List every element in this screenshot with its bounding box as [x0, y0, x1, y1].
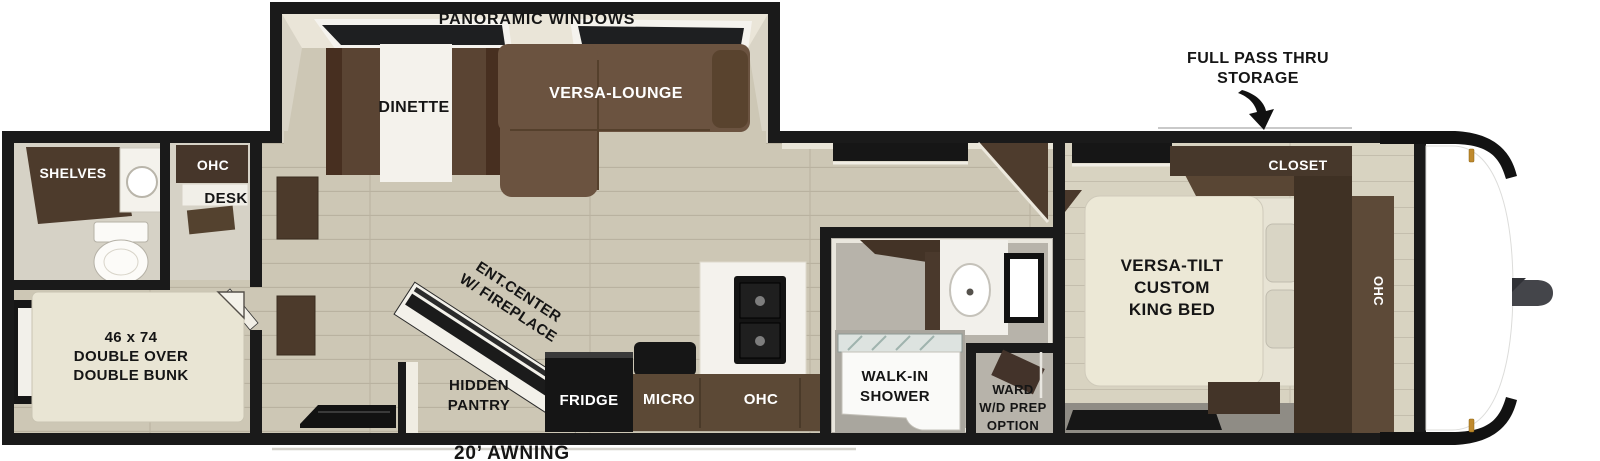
ward-label-line: WARD: [992, 382, 1033, 397]
bedroom-divider-wall: [1053, 143, 1065, 433]
marker-light: [1469, 419, 1474, 432]
bunk-label-line: 46 x 74: [105, 329, 158, 346]
bunk-window-glass: [18, 308, 32, 396]
pass-thru-label-line: FULL PASS THRU: [1187, 50, 1329, 67]
bathroom-top-wall: [820, 227, 1065, 238]
shower-label-line: WALK-IN: [862, 368, 929, 385]
desk-label: DESK: [204, 190, 247, 207]
microwave: [634, 342, 696, 376]
king-bed-label-line: CUSTOM: [1134, 278, 1210, 297]
shower-glass: [838, 334, 962, 352]
lounge-arm: [712, 50, 748, 128]
ward-room: WARD W/D PREP OPTION: [966, 343, 1065, 443]
bath-bunk-wall: [2, 280, 170, 290]
panoramic-windows-label: PANORAMIC WINDOWS: [439, 11, 635, 28]
corridor-window: [833, 143, 968, 161]
tv-panel-lower: [277, 296, 315, 355]
hidden-pantry-label-line: PANTRY: [448, 397, 510, 414]
fridge-top: [545, 352, 633, 358]
pillow: [1266, 224, 1298, 282]
shower-label-line: SHOWER: [860, 388, 930, 405]
pass-thru-arrow-icon: [1238, 90, 1274, 130]
dinette-label: DINETTE: [378, 99, 449, 116]
dinette-booth: DINETTE: [326, 44, 502, 182]
bedroom-ohc-label-group: OHC: [1371, 276, 1386, 306]
bunk-room: 46 x 74 DOUBLE OVER DOUBLE BUNK: [14, 292, 244, 422]
bedroom: VERSA-TILT CUSTOM KING BED CLOSET OHC: [1065, 143, 1414, 433]
bunk-label-line: DOUBLE OVER: [74, 348, 188, 365]
bath-desk-wall: [160, 143, 170, 283]
kitchen-ohc-label: OHC: [744, 391, 779, 408]
pass-thru-label-line: STORAGE: [1217, 70, 1299, 87]
ohc-desk-label: OHC: [197, 157, 229, 173]
versa-lounge-label: VERSA-LOUNGE: [549, 85, 683, 102]
rear-divider-wall-lower: [250, 330, 262, 433]
ward-top-wall: [966, 343, 1065, 353]
nightstand: [1208, 382, 1280, 414]
rear-divider-wall-upper: [250, 143, 262, 287]
dinette-bench-left-back: [326, 48, 342, 175]
ward-label-line: W/D PREP: [979, 400, 1046, 415]
desk-chair: [187, 206, 235, 235]
front-cap-body: [1426, 146, 1513, 430]
shelves-cabinet: [26, 147, 132, 224]
sink-drain: [967, 289, 974, 296]
floorplan-canvas: PANORAMIC WINDOWS DINETTE VERSA-LOUNGE S…: [0, 0, 1600, 461]
bunk-label-line: DOUBLE BUNK: [73, 367, 188, 384]
bedroom-window-bottom: [1066, 410, 1222, 430]
micro-label: MICRO: [643, 391, 695, 408]
marker-light: [1469, 149, 1474, 162]
rear-bath-sink: [127, 167, 157, 197]
ward-left-wall: [966, 343, 976, 443]
bedroom-ohc-label: OHC: [1371, 276, 1386, 306]
king-bed-label-line: VERSA-TILT: [1121, 256, 1224, 275]
toilet-tank: [94, 222, 148, 242]
toilet-bowl: [94, 240, 148, 284]
walk-in-shower: WALK-IN SHOWER: [835, 330, 965, 433]
slideout-window-right: [578, 26, 744, 45]
tv-panel-upper: [277, 177, 318, 239]
ward-label-line: OPTION: [987, 418, 1039, 433]
slideout-window-left: [322, 25, 505, 45]
bedroom-ohc-face: [1352, 196, 1394, 433]
shelves-label: SHELVES: [39, 165, 106, 181]
toilet: [94, 222, 148, 284]
bathroom-left-wall: [820, 227, 831, 433]
hidden-pantry-wall: [398, 362, 406, 433]
fridge-label: FRIDGE: [559, 392, 618, 409]
kitchen-sink: [734, 276, 786, 364]
rv-floorplan: PANORAMIC WINDOWS DINETTE VERSA-LOUNGE S…: [0, 0, 1600, 461]
king-bed-label-line: KING BED: [1129, 300, 1215, 319]
lounge-chaise: [500, 44, 598, 197]
hidden-pantry-label-line: HIDDEN: [449, 377, 509, 394]
bath-window: [1010, 259, 1038, 317]
sink-drain: [755, 336, 765, 346]
pillow: [1266, 290, 1298, 348]
hidden-pantry-wall-face: [406, 362, 418, 433]
bedroom-ohc-cabinet: [1294, 176, 1352, 433]
awning-label: 20’ AWNING: [454, 443, 570, 461]
sink-drain: [755, 296, 765, 306]
closet-label: CLOSET: [1268, 157, 1327, 173]
bedroom-window-top: [1072, 143, 1172, 163]
